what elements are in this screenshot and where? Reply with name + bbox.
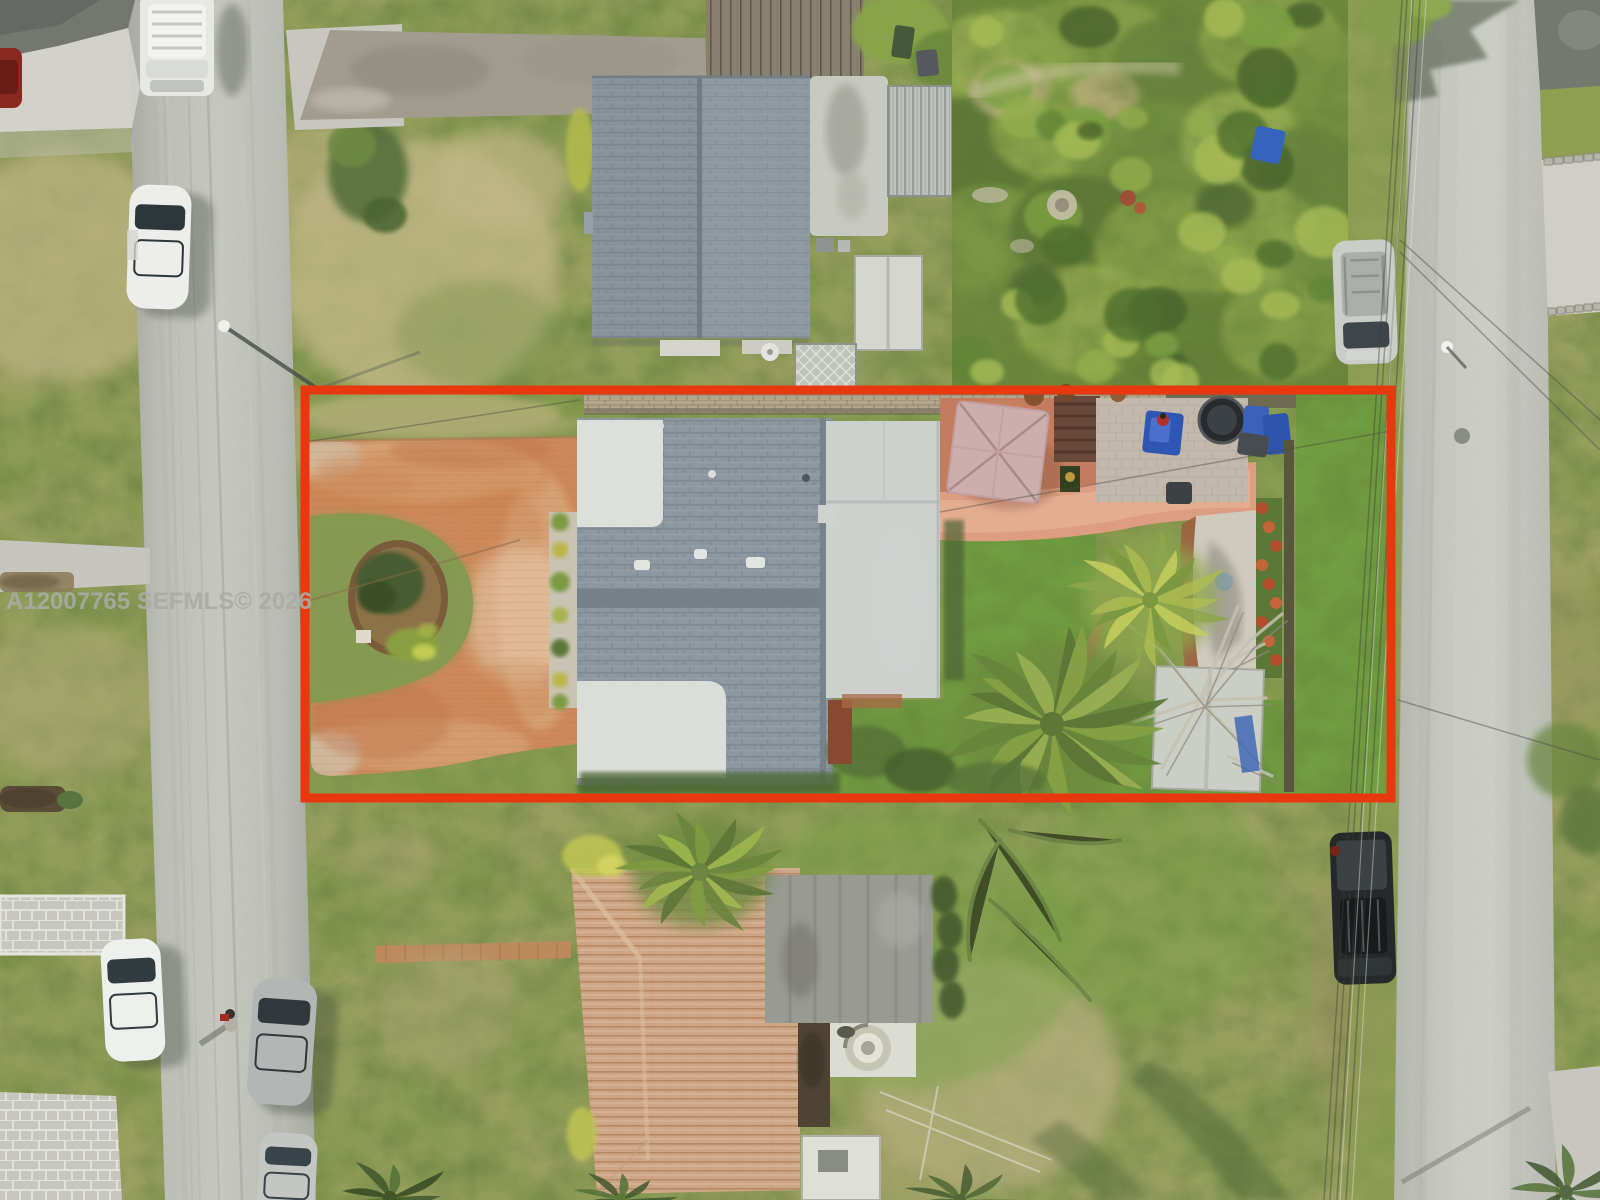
svg-text:A12007765 SEFMLS© 2026: A12007765 SEFMLS© 2026 [6, 588, 312, 615]
